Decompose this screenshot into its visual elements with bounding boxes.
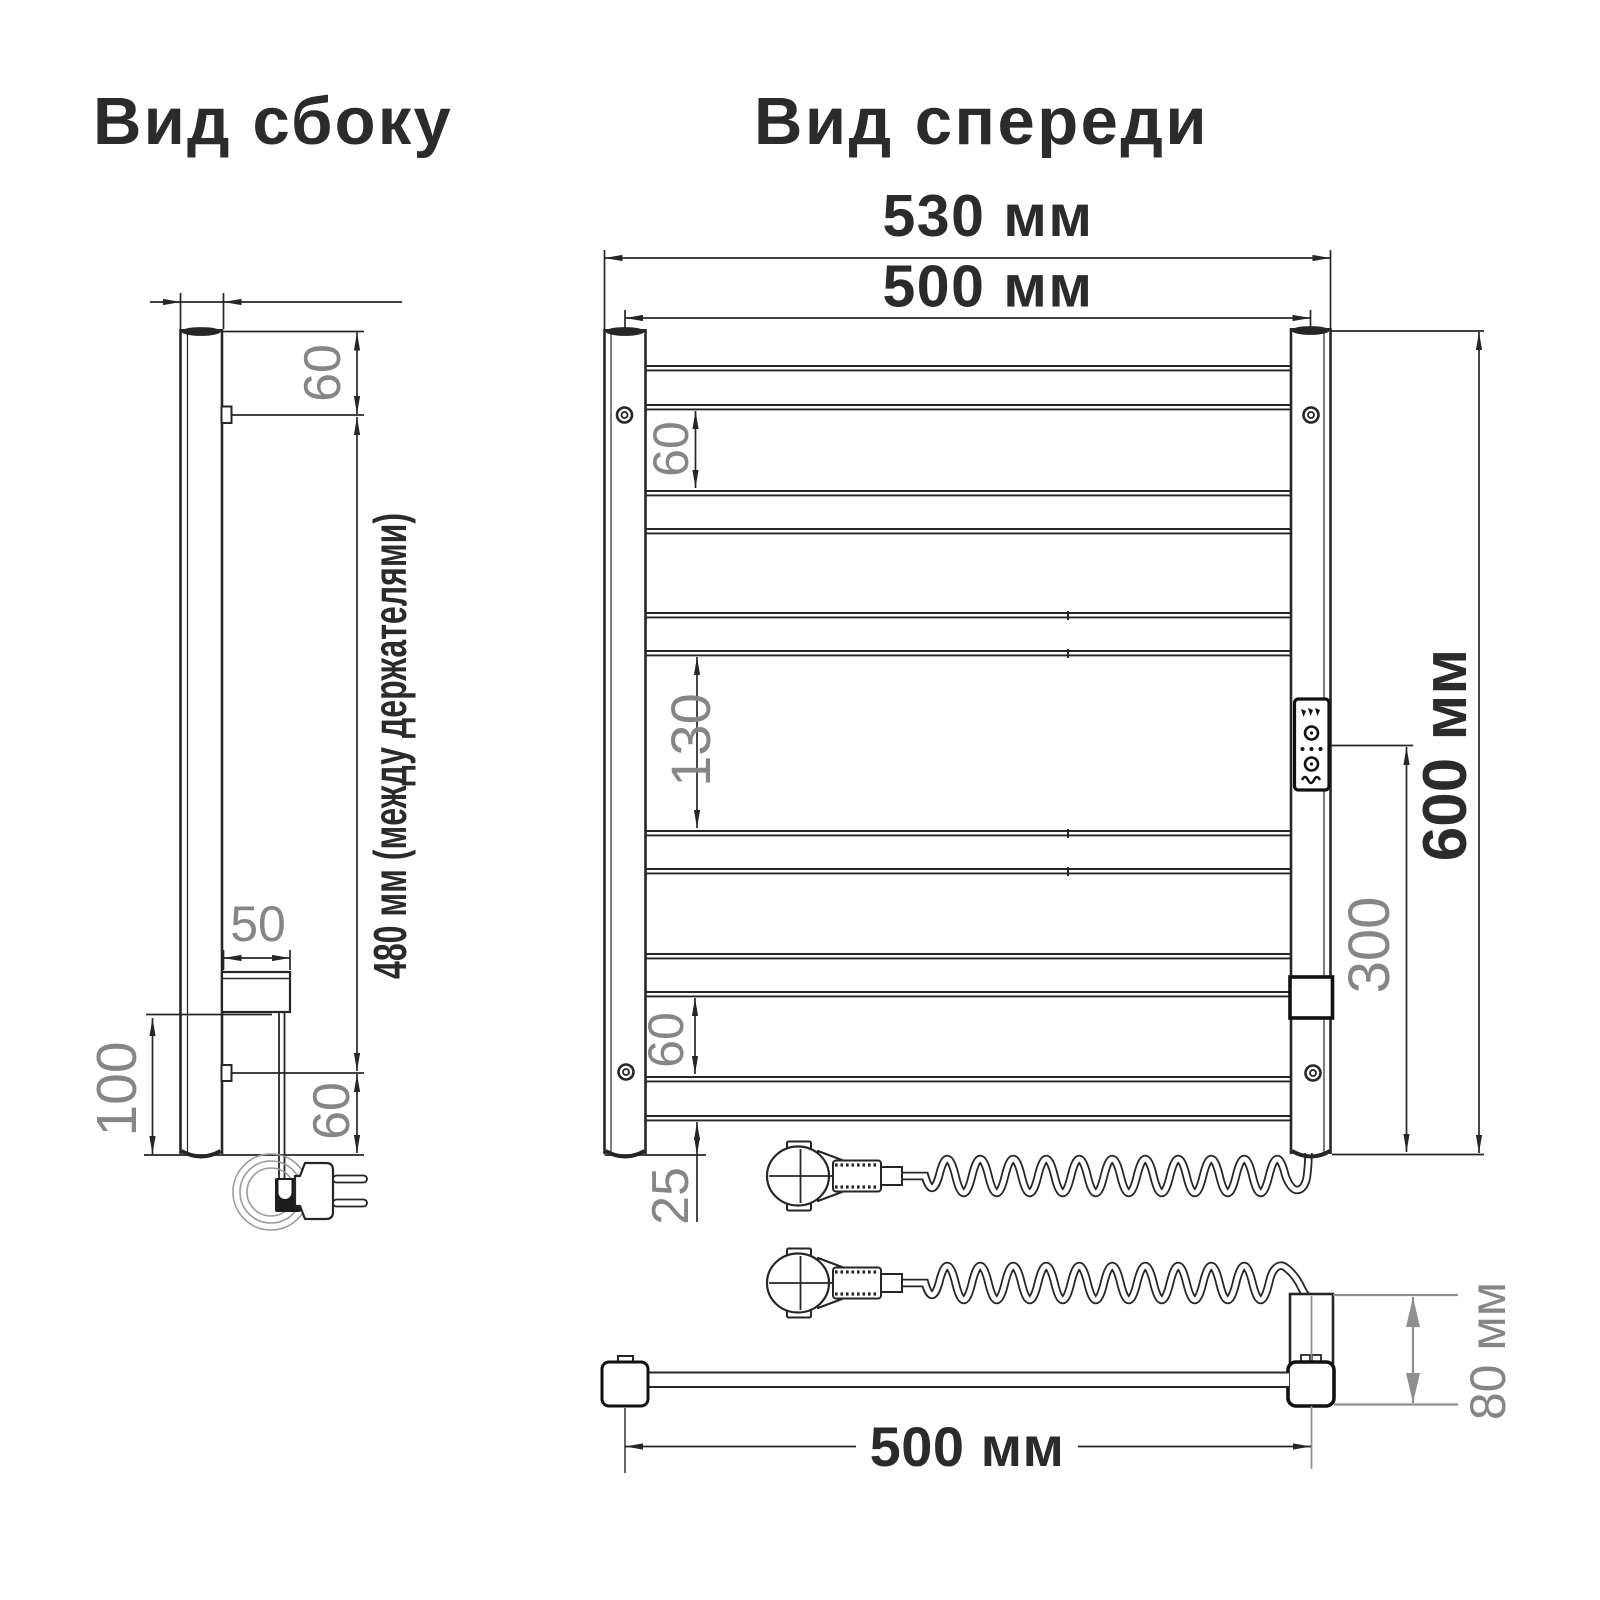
- svg-text:60: 60: [643, 421, 699, 477]
- svg-text:60: 60: [638, 1012, 694, 1068]
- svg-text:300: 300: [1337, 897, 1402, 994]
- svg-text:Вид спереди: Вид спереди: [754, 84, 1209, 159]
- svg-text:25: 25: [642, 1167, 700, 1225]
- svg-text:500 мм: 500 мм: [882, 254, 1093, 320]
- svg-text:60: 60: [294, 344, 352, 402]
- svg-text:60: 60: [303, 1082, 361, 1140]
- svg-text:50: 50: [230, 896, 286, 952]
- svg-text:80 мм: 80 мм: [1460, 1282, 1516, 1420]
- svg-text:100: 100: [85, 1041, 149, 1136]
- svg-text:480 мм (между держателями): 480 мм (между держателями): [364, 513, 416, 979]
- svg-text:Вид сбоку: Вид сбоку: [93, 84, 453, 159]
- svg-text:600 мм: 600 мм: [1411, 649, 1480, 861]
- svg-text:500 мм: 500 мм: [870, 1415, 1065, 1478]
- svg-text:530 мм: 530 мм: [882, 183, 1093, 249]
- svg-text:130: 130: [659, 693, 722, 786]
